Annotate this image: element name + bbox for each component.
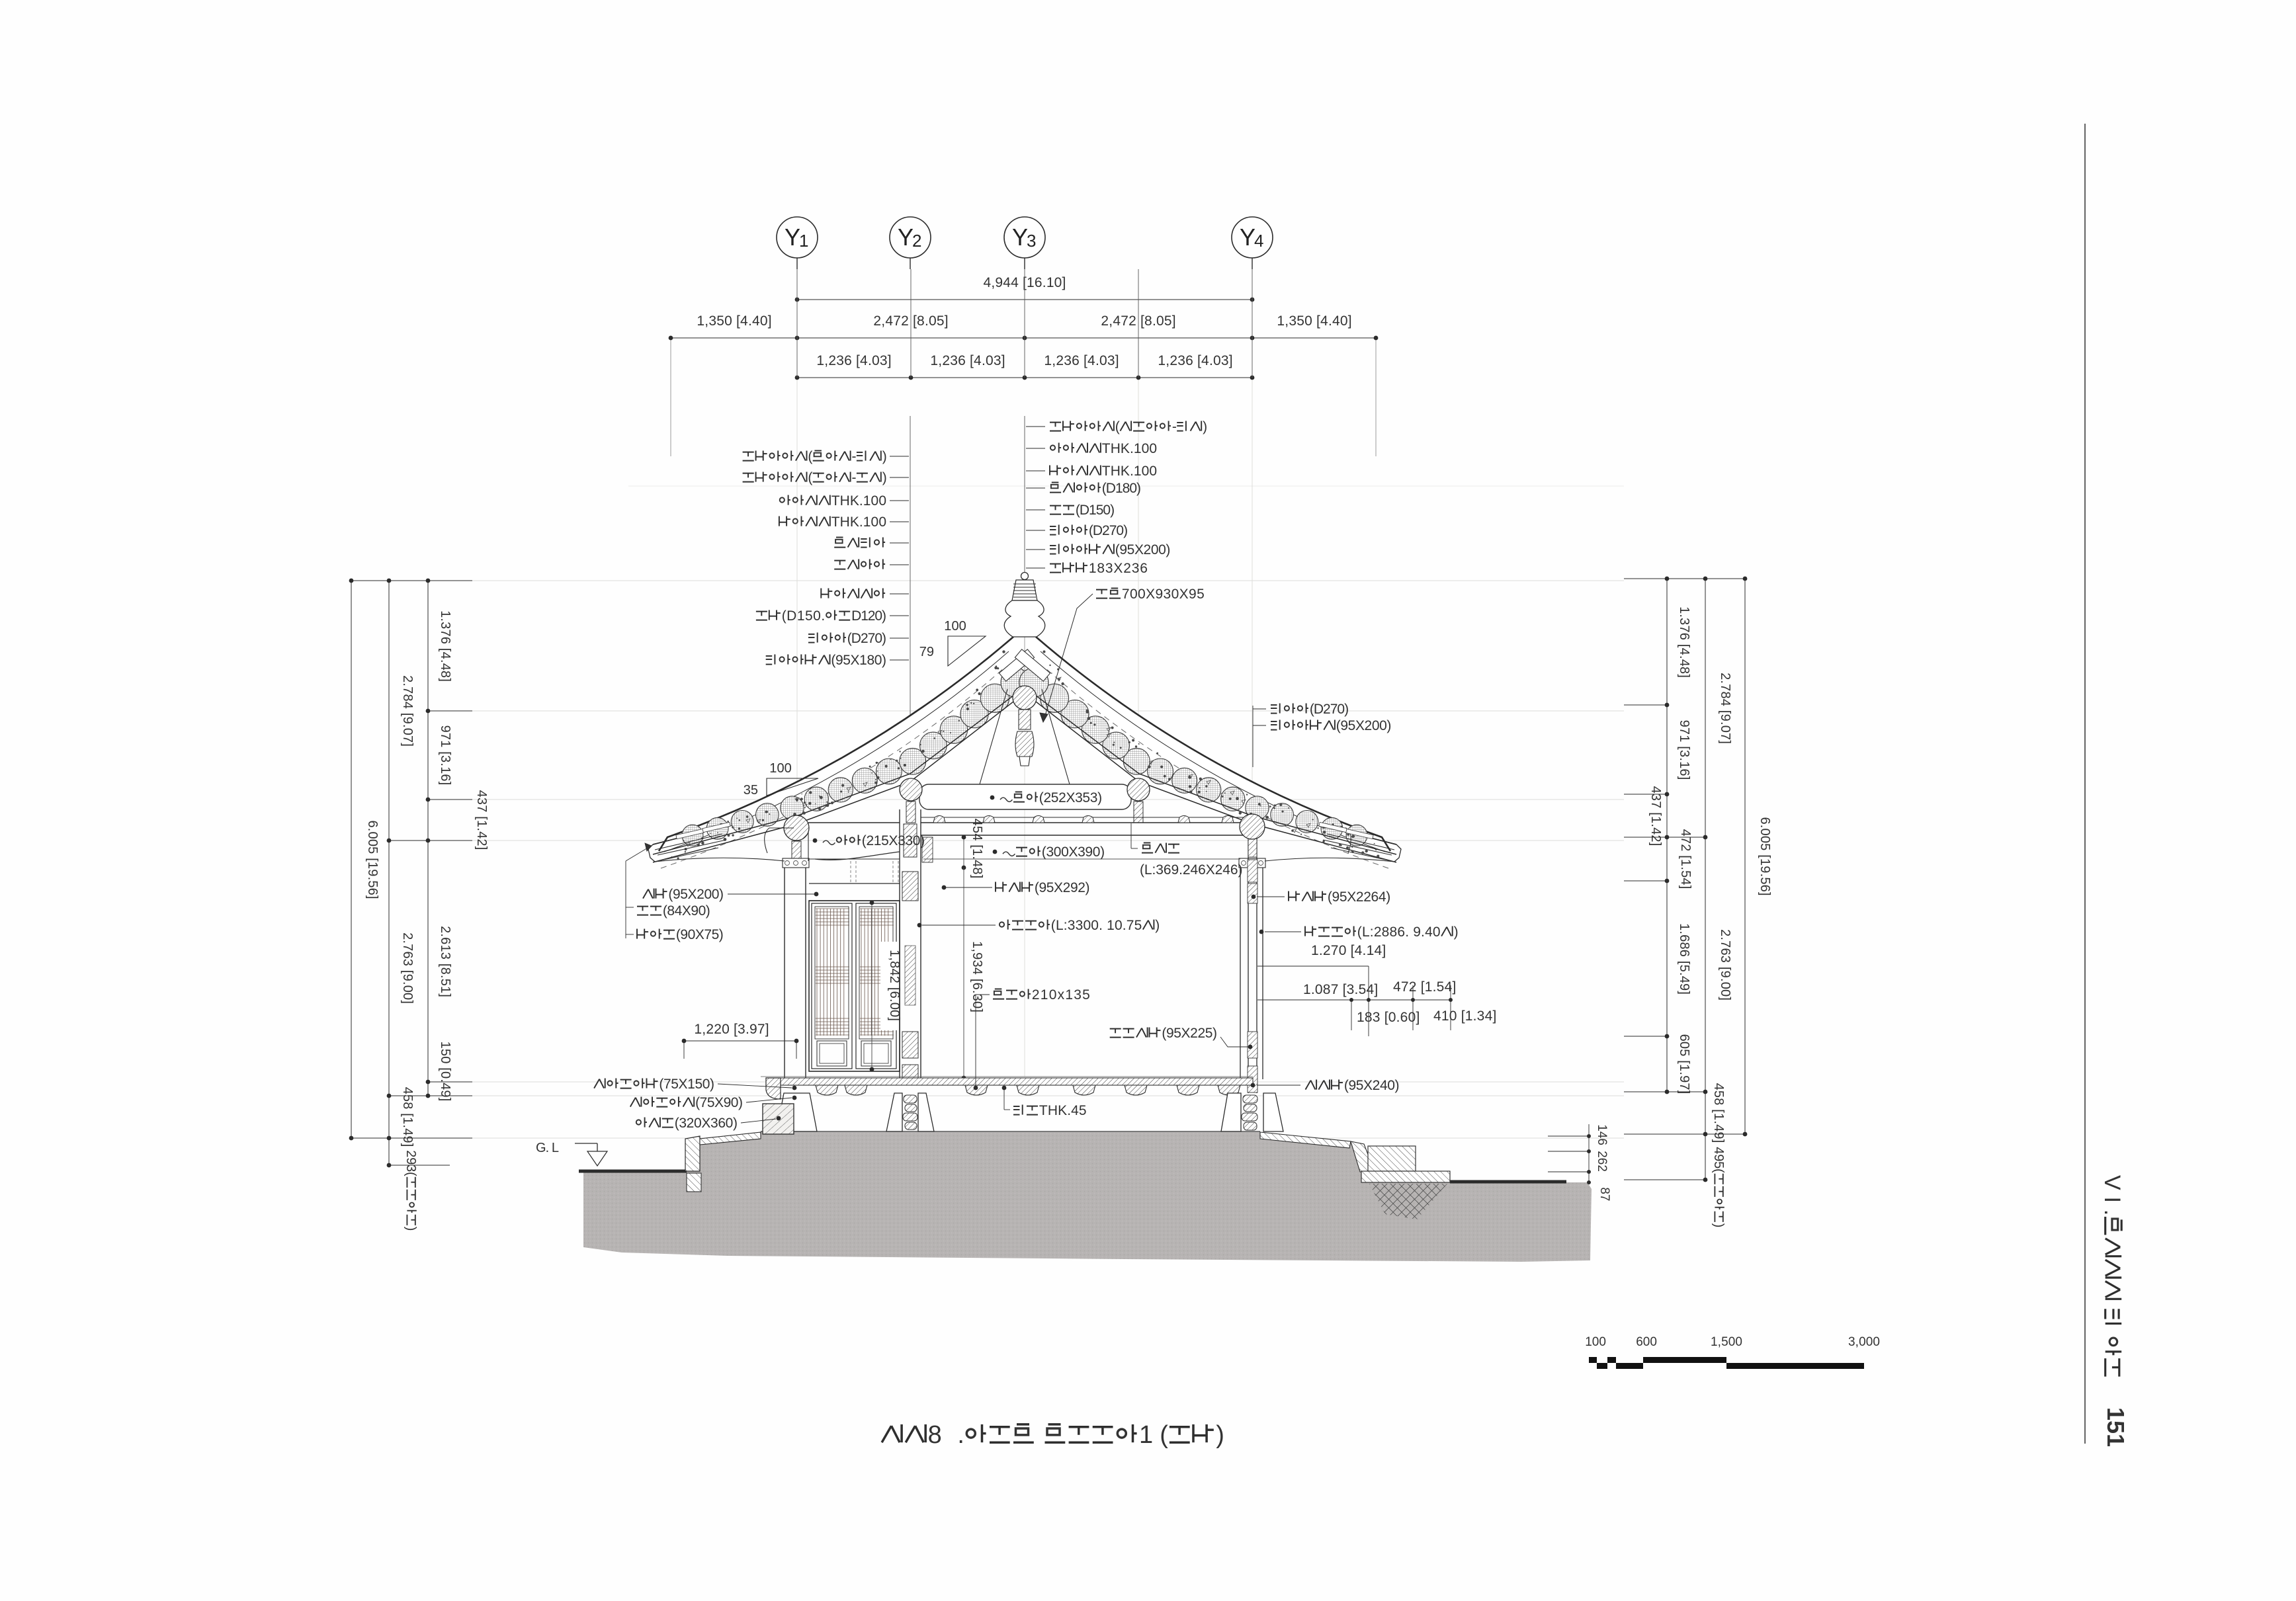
svg-text:183X236: 183X236 xyxy=(1089,561,1148,576)
svg-text:262: 262 xyxy=(1595,1151,1609,1172)
svg-text:1,236 [4.03]: 1,236 [4.03] xyxy=(1158,353,1232,368)
svg-text:(300X390): (300X390) xyxy=(1042,844,1105,860)
svg-text:THK.100: THK.100 xyxy=(1102,441,1157,456)
svg-text:971 [3.16]: 971 [3.16] xyxy=(438,725,452,786)
svg-text:): ) xyxy=(1155,918,1160,933)
svg-text:150 [0.49]: 150 [0.49] xyxy=(438,1042,452,1102)
svg-text:2.784 [9.07]: 2.784 [9.07] xyxy=(1718,673,1732,744)
svg-text:1,500: 1,500 xyxy=(1711,1335,1742,1349)
svg-text:(D180): (D180) xyxy=(1102,481,1141,496)
svg-text:100: 100 xyxy=(1585,1335,1606,1349)
svg-text:1.376 [4.48]: 1.376 [4.48] xyxy=(438,610,452,682)
svg-text:3: 3 xyxy=(1027,231,1036,251)
svg-text:Y: Y xyxy=(785,224,800,251)
svg-text:210x135: 210x135 xyxy=(1032,987,1090,1003)
svg-text:100: 100 xyxy=(944,619,966,634)
svg-text:(D270): (D270) xyxy=(847,631,886,646)
svg-text:(95X225): (95X225) xyxy=(1162,1026,1217,1041)
svg-text:Y: Y xyxy=(1240,224,1255,251)
svg-text:(L:3300. 10.75: (L:3300. 10.75 xyxy=(1051,918,1142,933)
svg-text:1,236 [4.03]: 1,236 [4.03] xyxy=(930,353,1005,368)
svg-text:971 [3.16]: 971 [3.16] xyxy=(1677,720,1691,780)
svg-text:1 (: 1 ( xyxy=(1139,1421,1168,1449)
svg-text:): ) xyxy=(1216,1421,1224,1449)
svg-text:(D150): (D150) xyxy=(1076,503,1115,518)
svg-text:2: 2 xyxy=(912,231,921,251)
svg-text:(90X75): (90X75) xyxy=(676,927,724,942)
svg-text:100: 100 xyxy=(769,761,791,776)
svg-text:(L:369.246X246): (L:369.246X246) xyxy=(1140,862,1243,878)
svg-text:2.763 [9.00]: 2.763 [9.00] xyxy=(1718,929,1732,1001)
svg-text:-: - xyxy=(852,470,857,485)
svg-text:146: 146 xyxy=(1595,1124,1609,1145)
svg-text:(: ( xyxy=(1115,419,1120,434)
svg-text:35: 35 xyxy=(744,783,758,798)
svg-text:(84X90): (84X90) xyxy=(663,903,710,919)
svg-text:(320X360): (320X360) xyxy=(675,1116,738,1131)
svg-text:472 [1.54]: 472 [1.54] xyxy=(1678,829,1693,889)
svg-text:(95X200): (95X200) xyxy=(668,887,724,902)
svg-text:1,350 [4.40]: 1,350 [4.40] xyxy=(1277,313,1351,329)
svg-text:1.686 [5.49]: 1.686 [5.49] xyxy=(1677,923,1691,995)
svg-text:2.784 [9.07]: 2.784 [9.07] xyxy=(400,675,415,747)
svg-text:G. L: G. L xyxy=(536,1141,559,1155)
svg-text:1.087 [3.54]: 1.087 [3.54] xyxy=(1303,982,1378,997)
svg-text:472 [1.54]: 472 [1.54] xyxy=(1393,979,1456,995)
svg-text:6.005 [19.56]: 6.005 [19.56] xyxy=(1758,817,1772,896)
svg-text:THK.45: THK.45 xyxy=(1039,1103,1087,1118)
svg-text:-: - xyxy=(852,449,857,464)
svg-text:THK.100: THK.100 xyxy=(831,514,886,530)
svg-text:2.613 [8.51]: 2.613 [8.51] xyxy=(438,926,452,997)
svg-text:605 [1.97]: 605 [1.97] xyxy=(1677,1034,1691,1094)
svg-text:): ) xyxy=(882,470,887,485)
svg-text:437 [1.42]: 437 [1.42] xyxy=(1648,786,1663,846)
svg-text:(D150.: (D150. xyxy=(782,608,826,624)
svg-text:4: 4 xyxy=(1254,231,1263,251)
svg-text:600: 600 xyxy=(1636,1335,1657,1349)
svg-text:THK.100: THK.100 xyxy=(831,493,886,509)
svg-text:79: 79 xyxy=(919,645,934,659)
svg-text:293(: 293( xyxy=(404,1150,418,1176)
svg-text:): ) xyxy=(1203,419,1207,434)
svg-text:183 [0.60]: 183 [0.60] xyxy=(1357,1010,1420,1025)
svg-text:-: - xyxy=(1172,419,1177,434)
svg-text:437 [1.42]: 437 [1.42] xyxy=(474,790,489,850)
svg-text:1,236 [4.03]: 1,236 [4.03] xyxy=(1044,353,1119,368)
svg-text:6.005 [19.56]: 6.005 [19.56] xyxy=(365,821,380,899)
svg-text:410 [1.34]: 410 [1.34] xyxy=(1433,1008,1496,1024)
svg-text:458 [1.49]: 458 [1.49] xyxy=(400,1087,415,1147)
svg-text:151: 151 xyxy=(2102,1407,2129,1447)
svg-text:(: ( xyxy=(808,449,812,464)
svg-text:1.376 [4.48]: 1.376 [4.48] xyxy=(1677,606,1691,678)
svg-text:THK.100: THK.100 xyxy=(1102,464,1157,479)
svg-text:1,220 [3.97]: 1,220 [3.97] xyxy=(694,1022,769,1037)
svg-text:1.270 [4.14]: 1.270 [4.14] xyxy=(1311,943,1386,958)
svg-text:(: ( xyxy=(808,470,812,485)
svg-text:Y: Y xyxy=(898,224,914,251)
svg-text:458 [1.49]: 458 [1.49] xyxy=(1711,1083,1726,1143)
svg-text:1,236 [4.03]: 1,236 [4.03] xyxy=(816,353,891,368)
svg-text:Y: Y xyxy=(1012,224,1028,251)
svg-text:(95X200): (95X200) xyxy=(1336,718,1392,733)
svg-text:(252X353): (252X353) xyxy=(1039,790,1102,805)
svg-text:(95X200): (95X200) xyxy=(1115,542,1171,557)
svg-text:(75X150): (75X150) xyxy=(659,1077,714,1092)
svg-text:3,000: 3,000 xyxy=(1848,1335,1880,1349)
svg-text:(D270): (D270) xyxy=(1310,702,1349,717)
svg-text:): ) xyxy=(1454,924,1459,940)
svg-text:D120): D120) xyxy=(851,608,886,624)
svg-text:2.763 [9.00]: 2.763 [9.00] xyxy=(400,932,415,1004)
svg-text:): ) xyxy=(404,1227,418,1231)
svg-text:(L:2886. 9.40: (L:2886. 9.40 xyxy=(1357,924,1441,940)
svg-text:1,842 [6.00]: 1,842 [6.00] xyxy=(887,950,902,1021)
svg-text:(95X240): (95X240) xyxy=(1344,1078,1400,1093)
svg-text:): ) xyxy=(882,449,887,464)
svg-text:(D270): (D270) xyxy=(1089,523,1128,538)
svg-text:(95X292): (95X292) xyxy=(1035,880,1090,895)
svg-text:1,350 [4.40]: 1,350 [4.40] xyxy=(697,313,771,329)
svg-text:): ) xyxy=(1711,1223,1726,1228)
svg-text:(215X330): (215X330) xyxy=(862,833,925,848)
svg-text:(75X90): (75X90) xyxy=(695,1095,743,1110)
svg-text:495(: 495( xyxy=(1711,1147,1726,1173)
svg-text:1: 1 xyxy=(799,231,808,251)
svg-text:1,934 [6.30]: 1,934 [6.30] xyxy=(970,941,984,1012)
svg-text:700X930X95: 700X930X95 xyxy=(1122,587,1205,602)
svg-text:87: 87 xyxy=(1597,1187,1611,1201)
svg-text:(95X2264): (95X2264) xyxy=(1328,889,1390,905)
svg-text:(95X180): (95X180) xyxy=(831,653,886,668)
svg-text:454 [1.48]: 454 [1.48] xyxy=(970,819,984,879)
